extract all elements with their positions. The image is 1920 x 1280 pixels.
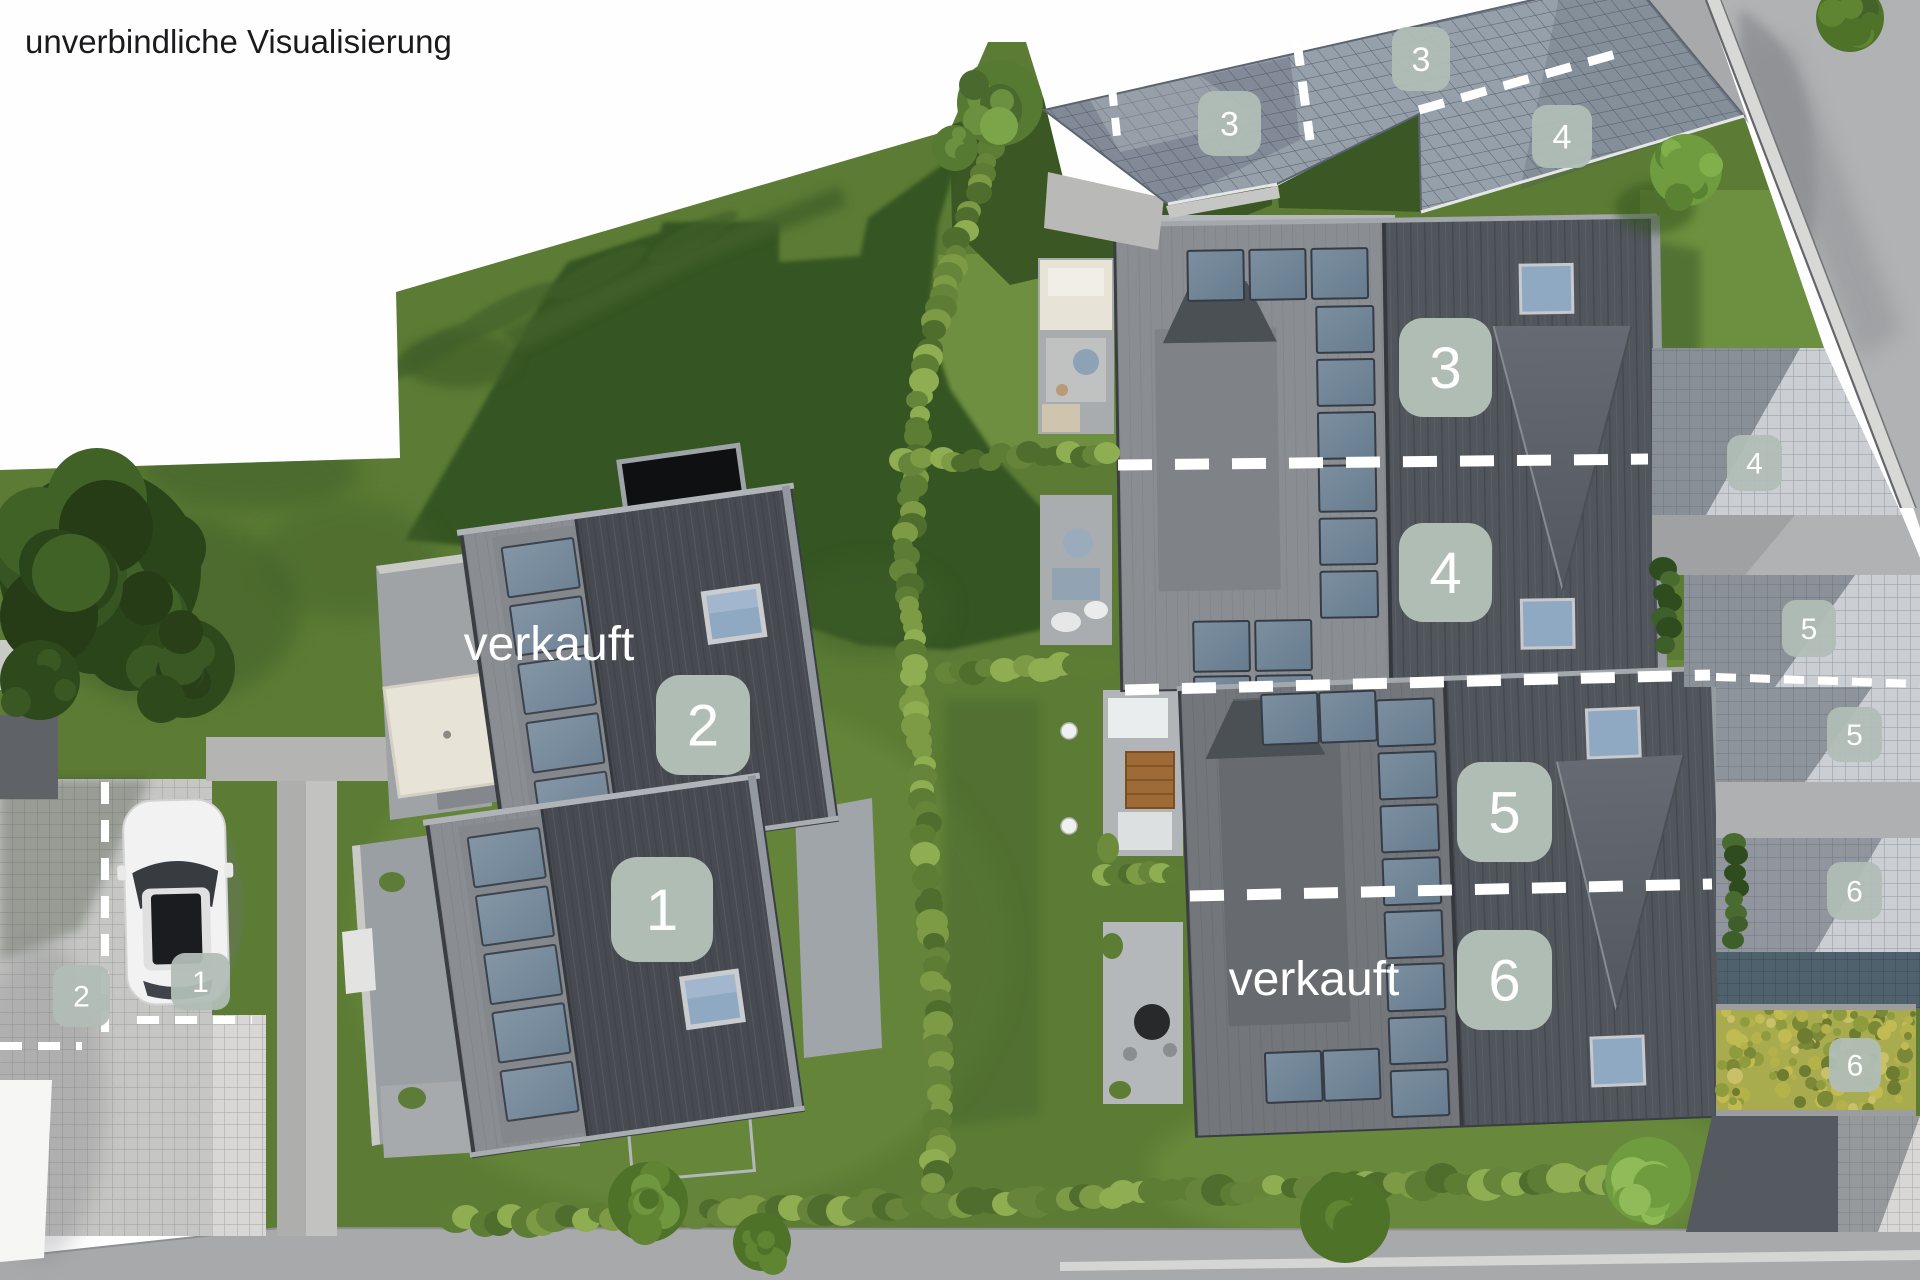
svg-text:6: 6 — [1488, 949, 1520, 1014]
svg-text:3: 3 — [1429, 336, 1461, 401]
svg-text:2: 2 — [73, 981, 90, 1014]
svg-text:verkauft: verkauft — [464, 618, 635, 671]
svg-text:5: 5 — [1488, 781, 1520, 846]
svg-text:3: 3 — [1412, 41, 1431, 79]
svg-text:4: 4 — [1429, 541, 1461, 606]
svg-text:4: 4 — [1746, 448, 1763, 481]
svg-text:3: 3 — [1220, 106, 1239, 144]
svg-text:1: 1 — [646, 878, 678, 943]
svg-text:5: 5 — [1801, 613, 1818, 646]
svg-text:verkauft: verkauft — [1229, 953, 1400, 1006]
svg-text:1: 1 — [192, 966, 209, 999]
svg-text:6: 6 — [1846, 876, 1863, 909]
svg-text:unverbindliche Visualisierung: unverbindliche Visualisierung — [25, 23, 452, 60]
svg-text:2: 2 — [687, 694, 719, 759]
svg-text:6: 6 — [1847, 1050, 1864, 1083]
svg-text:5: 5 — [1846, 719, 1863, 752]
svg-text:4: 4 — [1553, 119, 1572, 157]
